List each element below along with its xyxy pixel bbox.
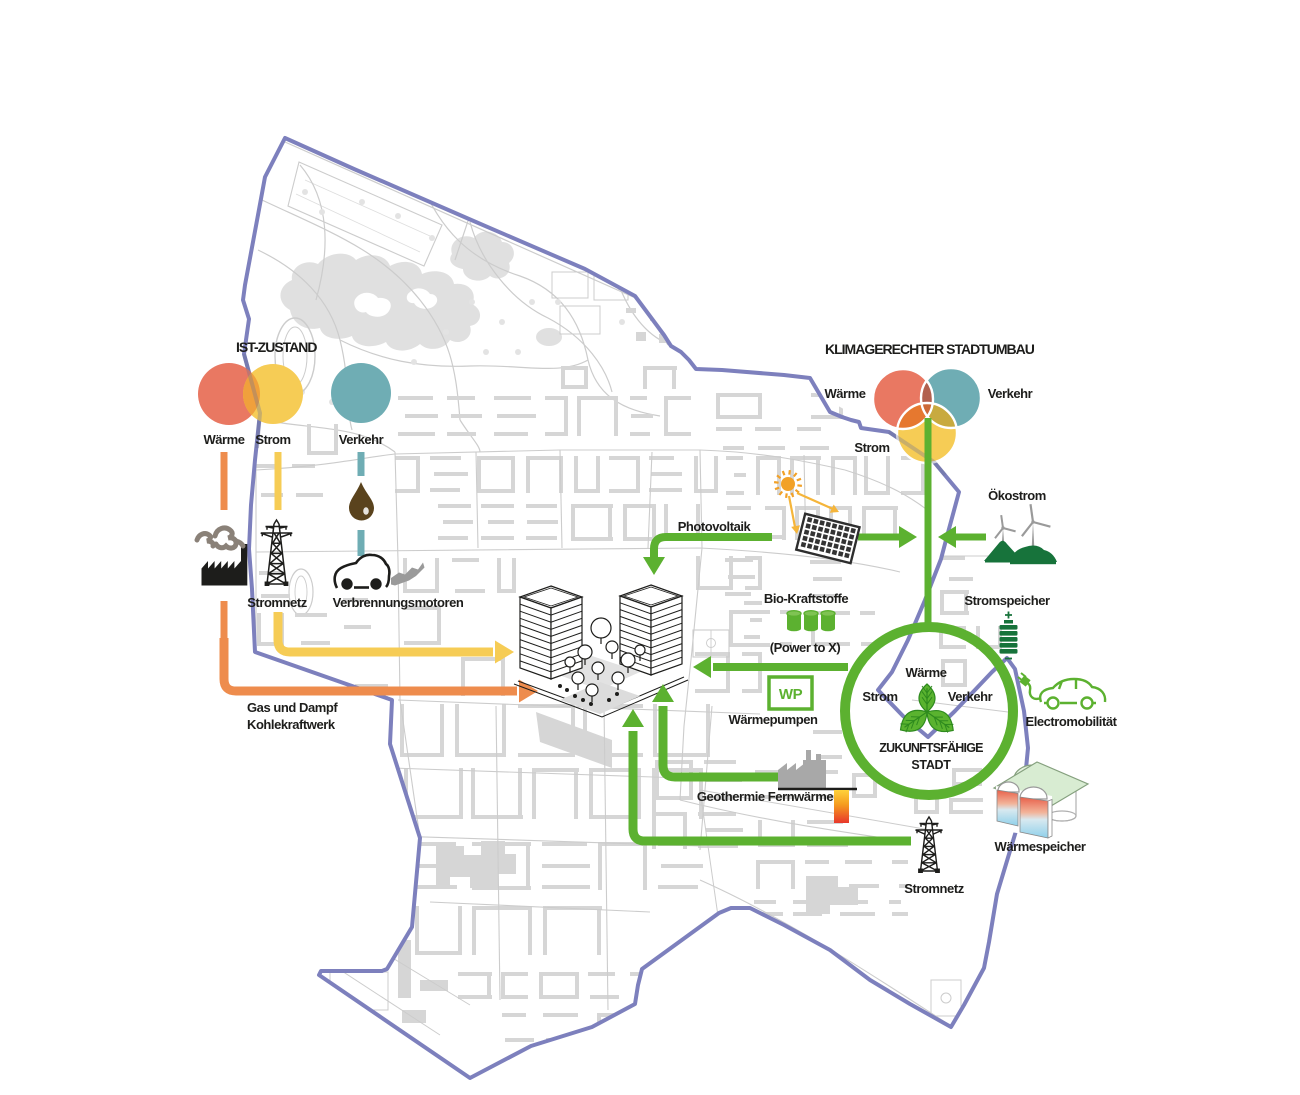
svg-text:Wärmespeicher: Wärmespeicher	[995, 839, 1086, 854]
svg-text:IST-ZUSTAND: IST-ZUSTAND	[236, 339, 317, 355]
svg-text:(Power to X): (Power to X)	[770, 640, 841, 655]
svg-text:Verkehr: Verkehr	[948, 689, 993, 704]
svg-text:WP: WP	[779, 686, 803, 703]
svg-text:Geothermie Fernwärme: Geothermie Fernwärme	[697, 789, 833, 804]
svg-text:Strom: Strom	[255, 432, 290, 447]
svg-text:STADT: STADT	[911, 758, 951, 772]
svg-text:Strom: Strom	[854, 440, 889, 455]
svg-text:Kohlekraftwerk: Kohlekraftwerk	[247, 717, 336, 732]
svg-text:Verkehr: Verkehr	[339, 432, 384, 447]
svg-text:Gas und Dampf: Gas und Dampf	[247, 700, 338, 715]
svg-text:Wärme: Wärme	[203, 432, 244, 447]
svg-text:Stromspeicher: Stromspeicher	[964, 593, 1050, 608]
svg-text:Ökostrom: Ökostrom	[988, 488, 1046, 503]
svg-text:KLIMAGERECHTER STADTUMBAU: KLIMAGERECHTER STADTUMBAU	[825, 341, 1035, 357]
svg-text:Wärmepumpen: Wärmepumpen	[729, 712, 818, 727]
svg-text:Electromobilität: Electromobilität	[1025, 714, 1117, 729]
svg-text:Verbrennungsmotoren: Verbrennungsmotoren	[333, 595, 464, 610]
svg-text:Bio-Kraftstoffe: Bio-Kraftstoffe	[764, 591, 848, 606]
svg-text:Wärme: Wärme	[824, 386, 865, 401]
svg-text:Photovoltaik: Photovoltaik	[678, 519, 752, 534]
svg-text:Strom: Strom	[862, 689, 897, 704]
svg-text:Stromnetz: Stromnetz	[904, 881, 964, 896]
svg-text:ZUKUNFTSFÄHIGE: ZUKUNFTSFÄHIGE	[879, 740, 983, 755]
svg-text:Verkehr: Verkehr	[988, 386, 1033, 401]
svg-text:Stromnetz: Stromnetz	[247, 595, 307, 610]
svg-text:Wärme: Wärme	[905, 665, 946, 680]
